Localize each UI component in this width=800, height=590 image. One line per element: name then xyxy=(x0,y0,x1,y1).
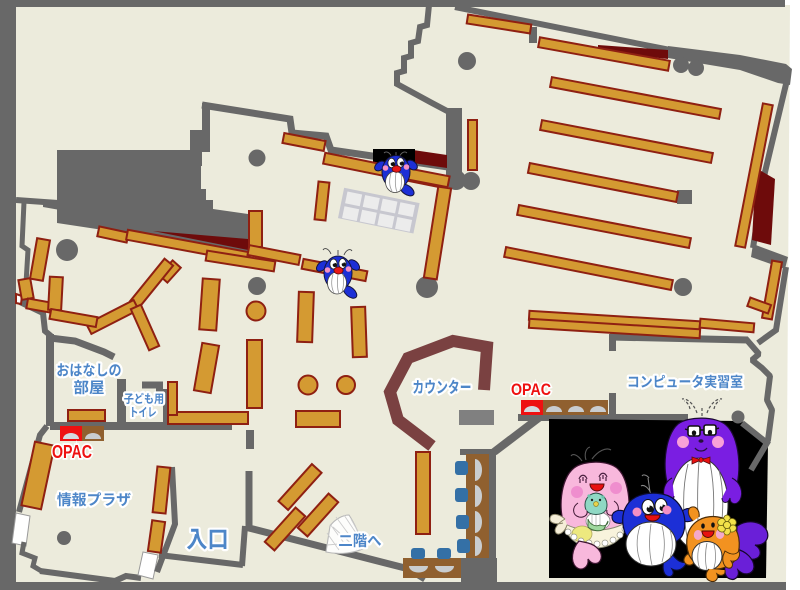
svg-text:OPAC: OPAC xyxy=(52,442,92,462)
svg-text:OPAC: OPAC xyxy=(511,380,551,399)
